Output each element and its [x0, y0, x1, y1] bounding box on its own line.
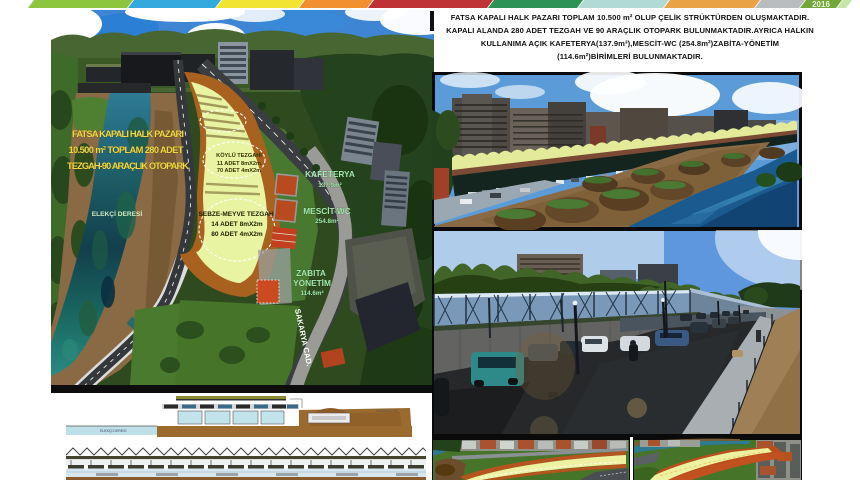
svg-text:2016: 2016: [812, 0, 830, 9]
svg-text:SAKARYA CAD.: SAKARYA CAD.: [376, 409, 399, 413]
svg-text:254.8m²: 254.8m²: [315, 218, 338, 225]
svg-text:114.6m²: 114.6m²: [300, 290, 323, 297]
svg-text:MESCİT-WC: MESCİT-WC: [303, 206, 350, 216]
svg-text:14 ADET 8mX2m: 14 ADET 8mX2m: [211, 221, 263, 228]
svg-text:10.500 m² TOPLAM 280 ADET: 10.500 m² TOPLAM 280 ADET: [69, 145, 184, 155]
svg-text:ELEKÇİ DERESİ: ELEKÇİ DERESİ: [100, 428, 126, 433]
svg-text:YÖNETİM: YÖNETİM: [293, 278, 331, 288]
svg-text:KÖYLÜ TEZGAHI: KÖYLÜ TEZGAHI: [216, 152, 262, 159]
svg-text:70 ADET 4mX2m: 70 ADET 4mX2m: [217, 168, 261, 174]
svg-text:KAFETERYA: KAFETERYA: [305, 169, 355, 179]
svg-text:ZABITA: ZABITA: [296, 268, 326, 278]
svg-text:TEZGAH-90 ARAÇLIK OTOPARK: TEZGAH-90 ARAÇLIK OTOPARK: [67, 161, 189, 171]
svg-text:137.9m²: 137.9m²: [318, 182, 341, 189]
svg-text:FATSA KAPALI HALK PAZARI: FATSA KAPALI HALK PAZARI: [72, 129, 184, 139]
svg-text:11 ADET 8mX2m: 11 ADET 8mX2m: [217, 161, 261, 167]
svg-text:SEBZE-MEYVE TEZGAHI: SEBZE-MEYVE TEZGAHI: [199, 211, 276, 218]
svg-text:80 ADET 4mX2m: 80 ADET 4mX2m: [211, 231, 263, 238]
svg-text:ELEKÇİ DERESİ: ELEKÇİ DERESİ: [92, 210, 143, 218]
